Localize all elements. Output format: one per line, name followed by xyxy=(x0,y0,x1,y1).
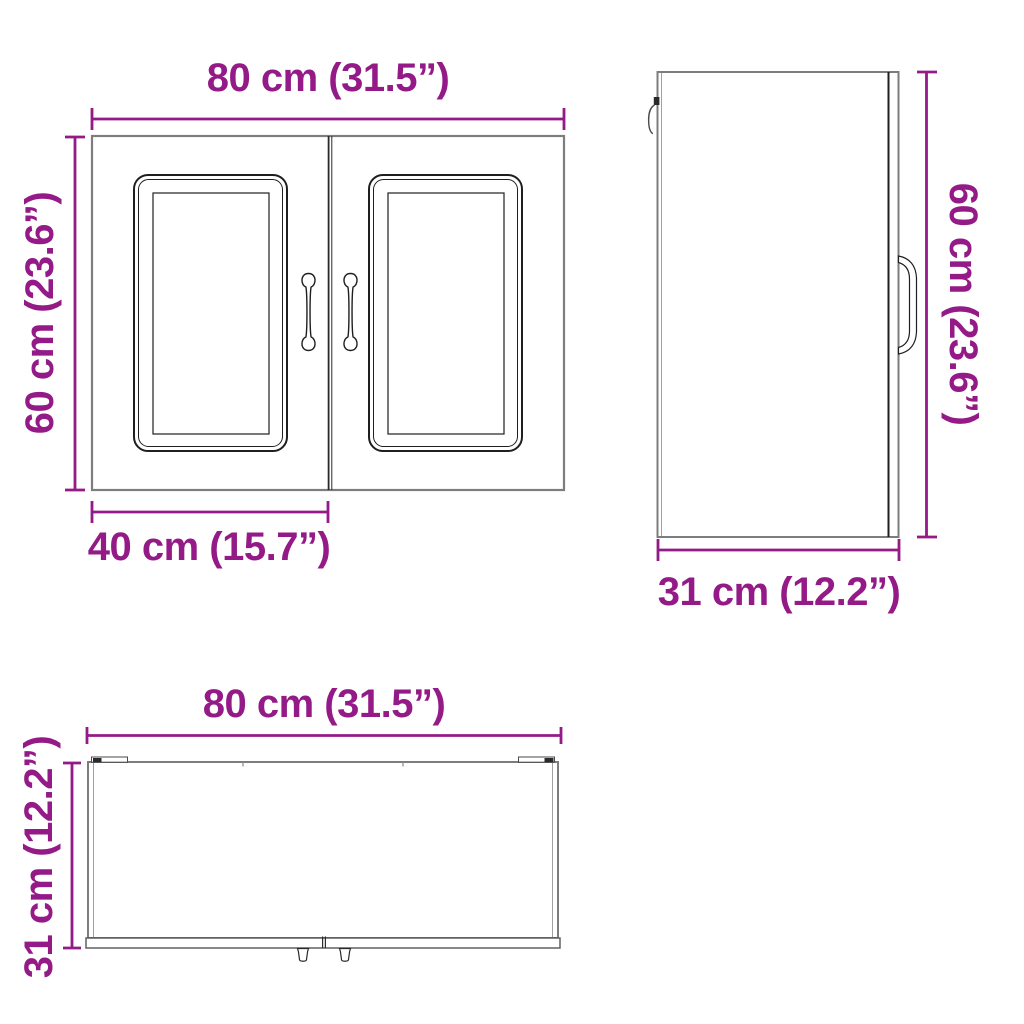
front-height-dimension-line xyxy=(65,137,85,490)
top-view-drawing xyxy=(86,757,560,961)
front-width-label: 80 cm (31.5”) xyxy=(207,58,450,98)
front-door-width-label: 40 cm (15.7”) xyxy=(88,527,331,567)
top-cabinet-outline xyxy=(88,762,558,938)
side-depth-label: 31 cm (12.2”) xyxy=(658,572,901,612)
side-cabinet-outline xyxy=(658,72,899,537)
top-width-label: 80 cm (31.5”) xyxy=(203,684,446,724)
top-left-knob-icon xyxy=(298,949,309,962)
top-depth-label: 31 cm (12.2”) xyxy=(19,736,59,979)
front-width-dimension-line xyxy=(92,108,564,130)
front-view-drawing xyxy=(92,136,564,490)
side-height-dimension-line xyxy=(917,72,937,537)
front-door-width-dimension-line xyxy=(92,501,328,523)
top-left-hinge-icon xyxy=(92,757,128,762)
top-depth-dimension-line xyxy=(63,763,81,948)
top-right-knob-icon xyxy=(340,949,351,962)
side-handle-icon xyxy=(899,256,917,354)
top-width-dimension-line xyxy=(87,727,561,744)
dimension-diagram: 80 cm (31.5”) 60 cm (23.6”) 40 cm (15.7”… xyxy=(0,0,1024,1024)
side-view-drawing xyxy=(649,72,917,537)
side-height-label: 60 cm (23.6”) xyxy=(943,183,983,426)
top-right-hinge-icon xyxy=(519,757,555,762)
side-depth-dimension-line xyxy=(658,539,899,561)
front-height-label: 60 cm (23.6”) xyxy=(20,192,60,435)
cabinet-line-drawing xyxy=(0,0,1024,1024)
